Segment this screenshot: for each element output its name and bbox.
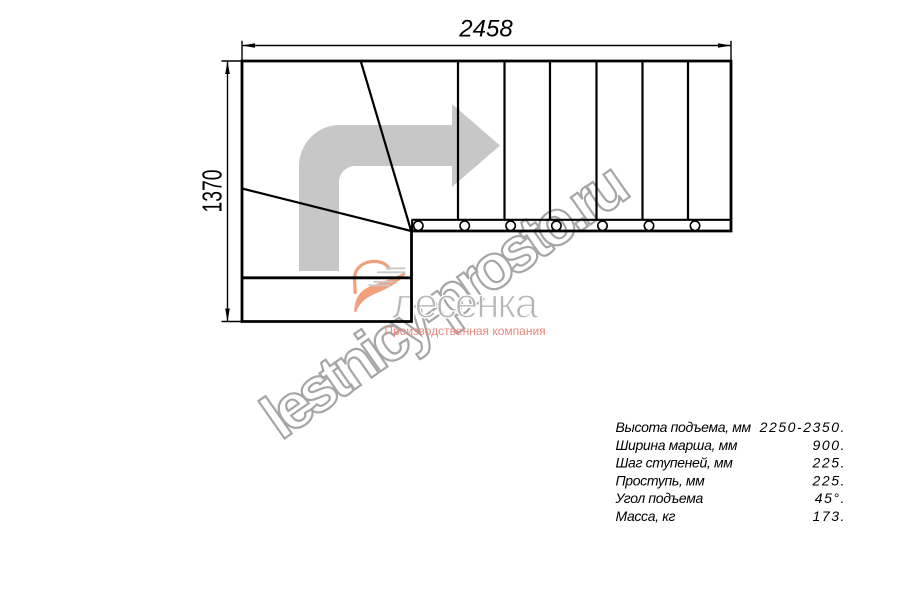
svg-text:2250-2350.: 2250-2350. bbox=[759, 419, 846, 435]
svg-text:2458: 2458 bbox=[458, 16, 513, 43]
svg-text:Шаг ступеней, мм: Шаг ступеней, мм bbox=[616, 455, 734, 471]
svg-text:225.: 225. bbox=[812, 472, 846, 488]
svg-text:173.: 173. bbox=[813, 508, 846, 524]
svg-text:Угол подъема: Угол подъема bbox=[615, 490, 704, 506]
svg-text:Высота подъема, мм: Высота подъема, мм bbox=[616, 419, 752, 435]
svg-text:45°.: 45°. bbox=[815, 490, 846, 506]
svg-text:Проступь, мм: Проступь, мм bbox=[616, 472, 706, 488]
svg-text:225.: 225. bbox=[812, 455, 846, 471]
svg-text:1370: 1370 bbox=[196, 170, 227, 213]
svg-text:900.: 900. bbox=[813, 437, 846, 453]
svg-text:лесенка: лесенка bbox=[392, 279, 539, 326]
svg-text:Производственная компания: Производственная компания bbox=[384, 324, 545, 338]
svg-text:Ширина марша, мм: Ширина марша, мм bbox=[616, 437, 738, 453]
svg-text:Масса, кг: Масса, кг bbox=[616, 508, 676, 524]
